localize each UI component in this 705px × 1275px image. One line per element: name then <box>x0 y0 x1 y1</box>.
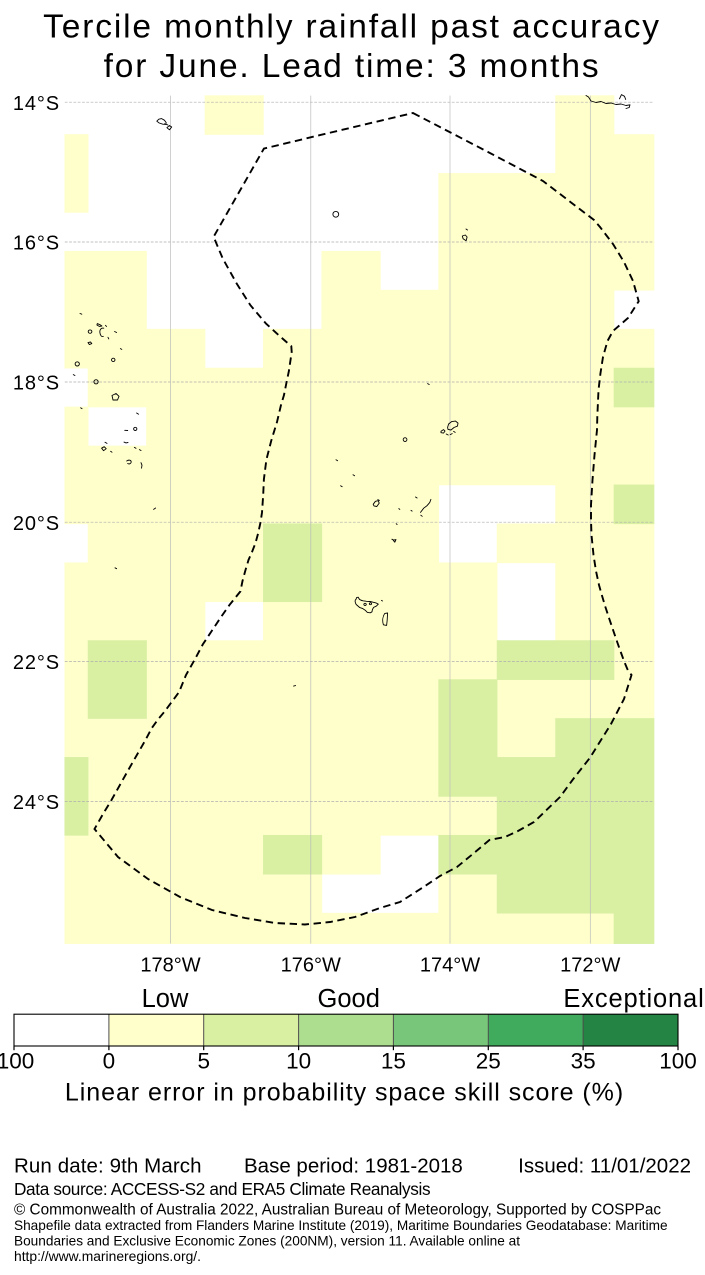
svg-text:10: 10 <box>286 1048 311 1073</box>
svg-text:16°S: 16°S <box>13 233 60 255</box>
svg-text:Boundaries and Exclusive Econo: Boundaries and Exclusive Economic Zones … <box>14 1234 520 1249</box>
svg-text:Good: Good <box>318 985 380 1013</box>
svg-text:174°W: 174°W <box>420 955 480 977</box>
svg-text:Issued: 11/01/2022: Issued: 11/01/2022 <box>518 1155 691 1178</box>
svg-text:100: 100 <box>0 1048 34 1073</box>
svg-text:Base period: 1981-2018: Base period: 1981-2018 <box>244 1155 463 1178</box>
svg-text:15: 15 <box>381 1048 406 1073</box>
svg-text:5: 5 <box>197 1048 210 1073</box>
svg-text:18°S: 18°S <box>13 373 60 395</box>
svg-text:100: 100 <box>659 1048 697 1073</box>
svg-text:Tercile monthly rainfall past: Tercile monthly rainfall past accuracy <box>43 9 661 46</box>
svg-text:25: 25 <box>476 1048 501 1073</box>
svg-text:Linear error in probability sp: Linear error in probability space skill … <box>65 1079 624 1107</box>
svg-text:14°S: 14°S <box>13 93 60 115</box>
svg-text:Run date: 9th March: Run date: 9th March <box>14 1155 202 1178</box>
svg-text:0: 0 <box>103 1048 116 1073</box>
svg-text:Shapefile data extracted from: Shapefile data extracted from Flanders M… <box>14 1218 668 1233</box>
svg-text:Low: Low <box>142 985 189 1013</box>
svg-text:178°W: 178°W <box>140 955 200 977</box>
svg-text:for June. Lead time: 3 months: for June. Lead time: 3 months <box>104 48 601 85</box>
svg-text:Exceptional: Exceptional <box>563 985 704 1013</box>
svg-text:24°S: 24°S <box>13 792 60 814</box>
svg-text:176°W: 176°W <box>281 955 341 977</box>
svg-text:© Commonwealth of Australia 20: © Commonwealth of Australia 2022, Austra… <box>14 1202 661 1219</box>
svg-text:22°S: 22°S <box>13 652 60 674</box>
svg-text:35: 35 <box>571 1048 596 1073</box>
svg-text:Data source: ACCESS-S2 and ERA: Data source: ACCESS-S2 and ERA5 Climate … <box>14 1179 430 1199</box>
svg-text:20°S: 20°S <box>13 513 60 535</box>
svg-text:172°W: 172°W <box>560 955 620 977</box>
svg-text:http://www.marineregions.org/.: http://www.marineregions.org/. <box>14 1248 201 1264</box>
